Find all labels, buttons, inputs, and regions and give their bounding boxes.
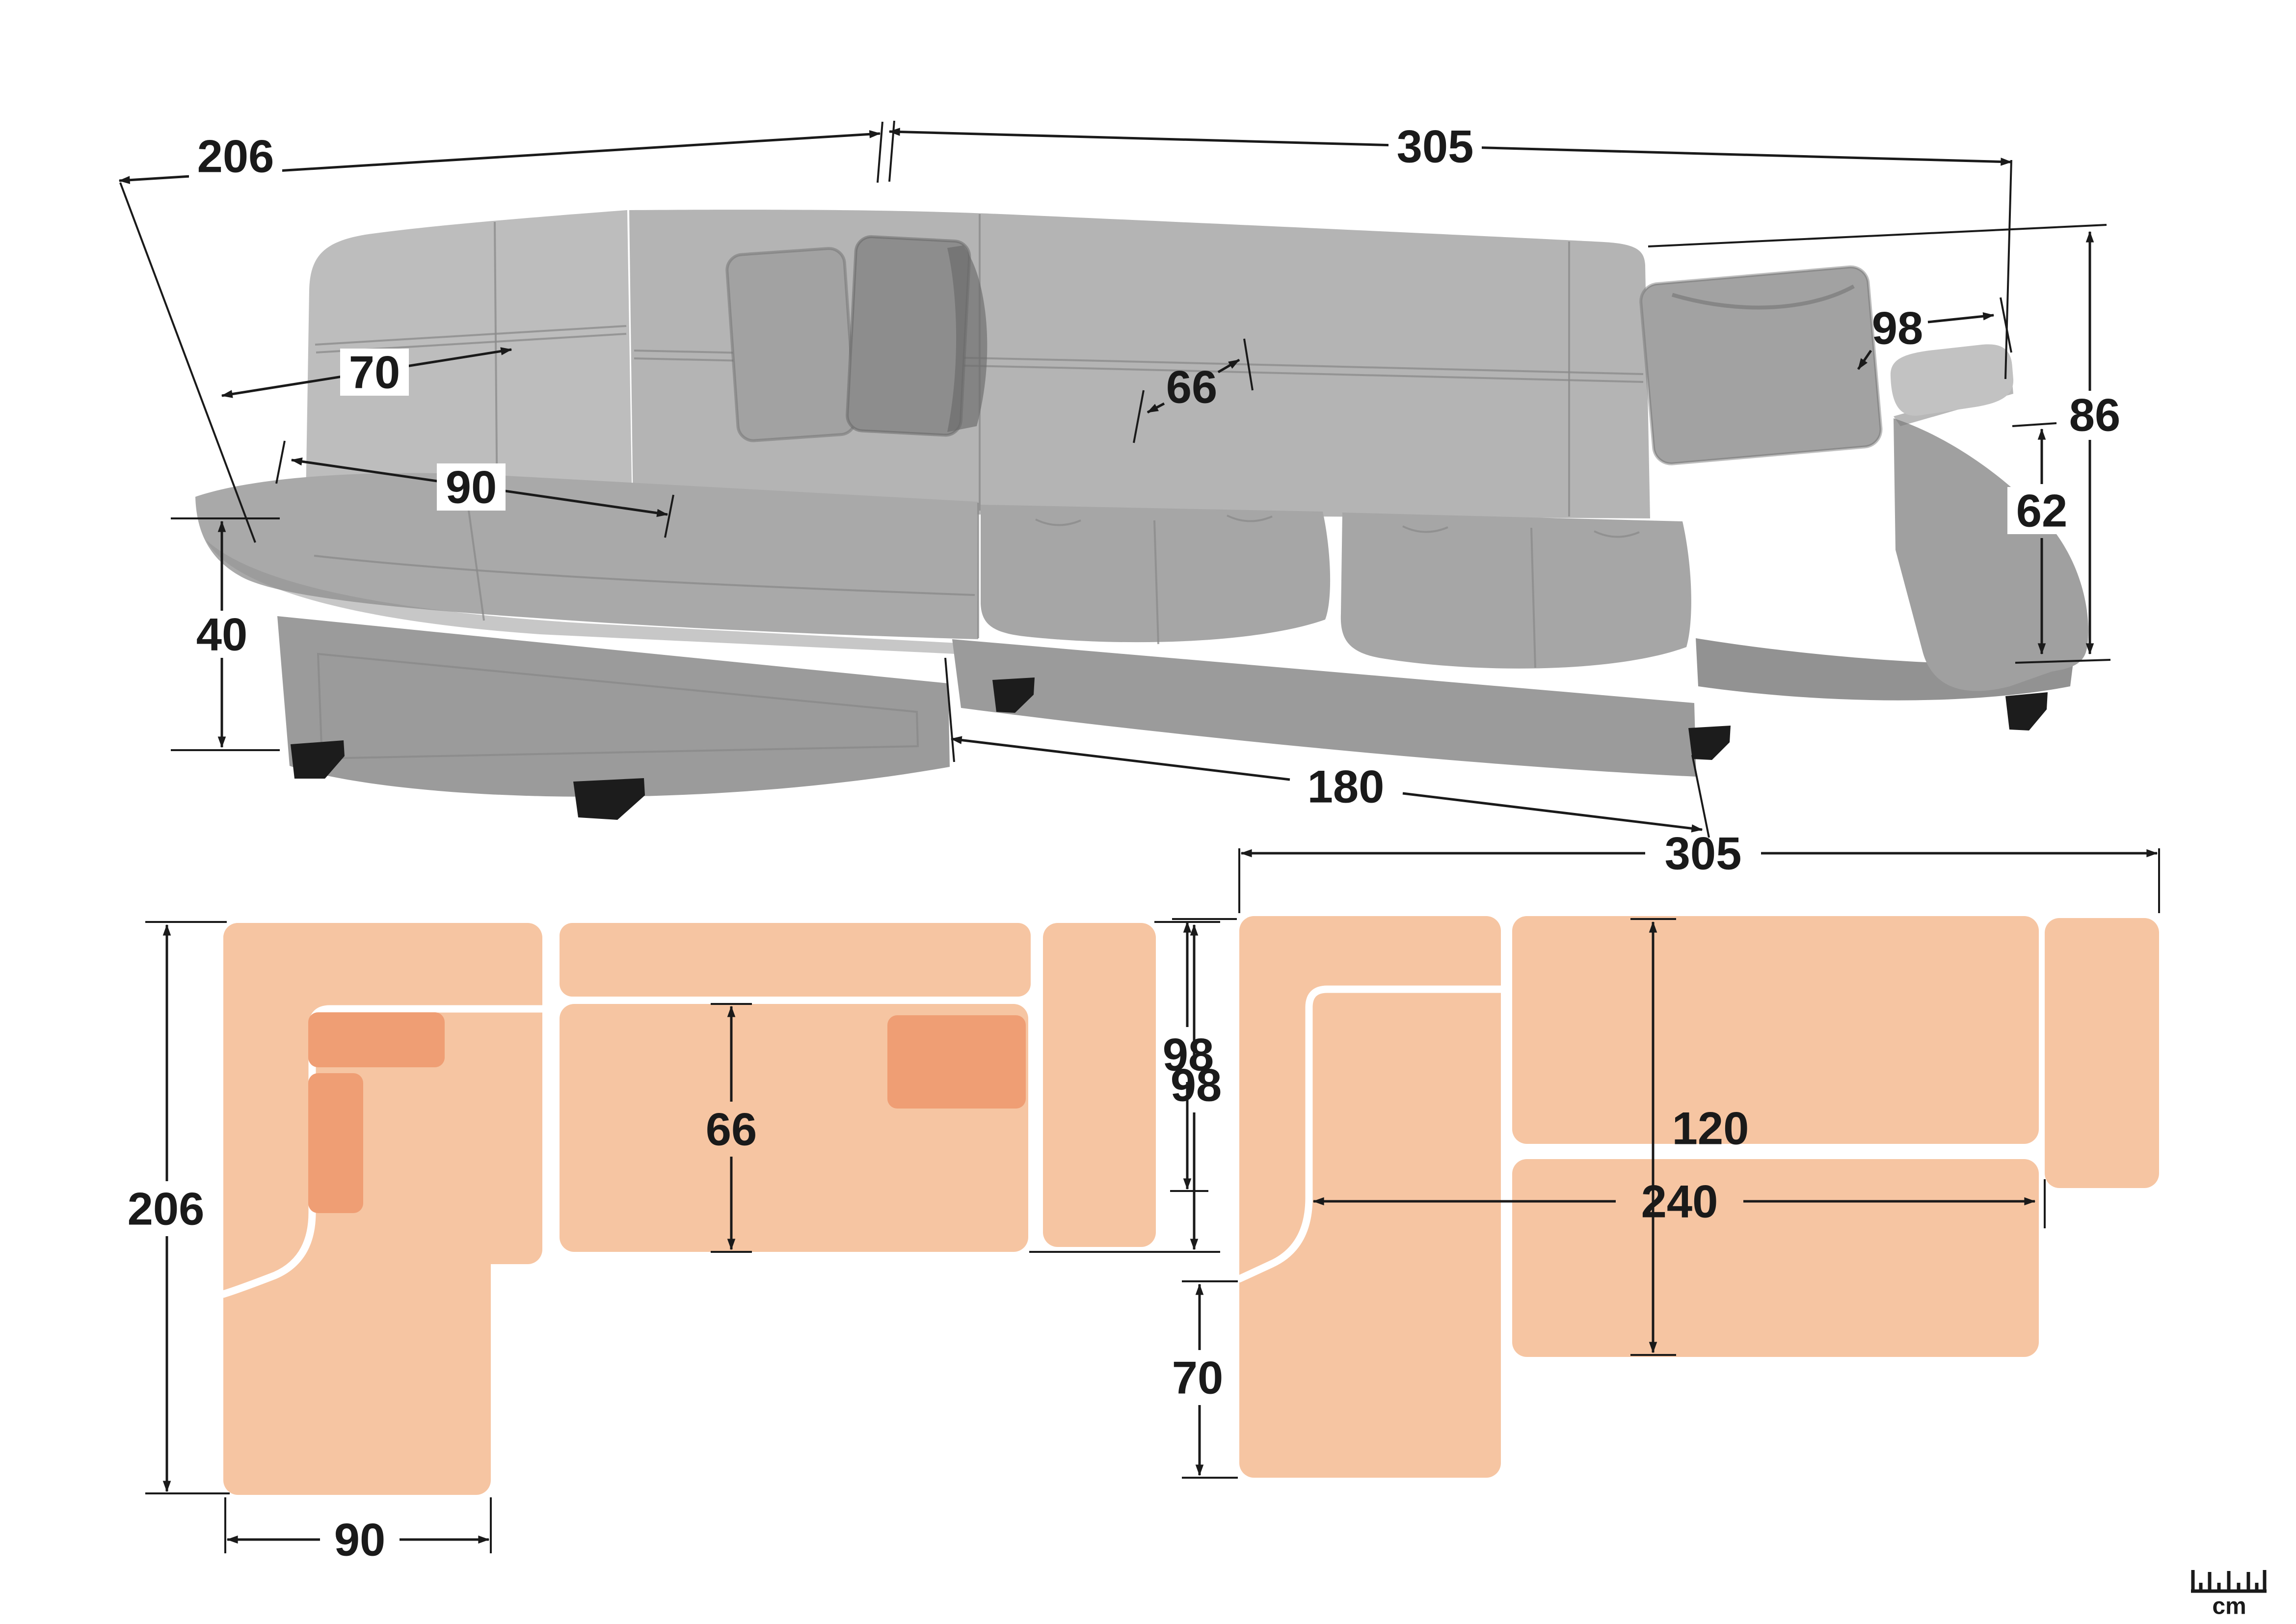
dim-line	[951, 739, 1290, 780]
dim-label-98-photo: 98	[1872, 302, 1923, 354]
plan-cushion-seat	[887, 1015, 1026, 1109]
dim-line	[1928, 315, 1994, 322]
cm-unit-label: cm	[2212, 1594, 2246, 1620]
dim-bed-width: 305	[1239, 828, 2159, 914]
dim-label-305-photo: 305	[1397, 121, 1474, 172]
dim-plan-chaise-width: 90	[225, 1497, 491, 1566]
floorplan-sofa-view: 206 90 66 98	[128, 922, 1222, 1566]
dim-label-66-plan: 66	[706, 1104, 757, 1155]
sofa-dimension-drawing: 206 305 70 90 40	[0, 0, 2296, 1624]
plan-bed-armrest	[2045, 918, 2159, 1188]
seat-cushion	[1341, 513, 1691, 669]
sofa-leg	[2005, 692, 2048, 731]
dim-label-240-bed: 240	[1641, 1176, 1718, 1227]
right-pillow	[1639, 266, 1882, 465]
dim-label-98-bed: 98	[1163, 1029, 1214, 1081]
dimension-sheet: 206 305 70 90 40	[0, 0, 2296, 1624]
dim-label-70-bed: 70	[1172, 1352, 1224, 1404]
plan-cushion-vertical	[308, 1073, 363, 1213]
sofa-photo	[195, 210, 2088, 820]
floorplan-bed-view: 305 98 70 120 240	[1163, 828, 2159, 1478]
ext-line	[1648, 225, 2107, 246]
dim-label-206-plan: 206	[128, 1183, 205, 1235]
dim-label-206-photo: 206	[197, 131, 274, 182]
dim-line	[1403, 793, 1702, 830]
dim-label-120-bed: 120	[1672, 1103, 1749, 1154]
plan-backrest-strip	[560, 923, 1031, 997]
dim-bed-module-depth: 98	[1163, 919, 1237, 1191]
chaise-seat	[195, 473, 978, 639]
sofa-leg	[1688, 726, 1731, 760]
ext-tick	[2012, 423, 2056, 426]
dim-label-86-photo: 86	[2069, 389, 2121, 441]
dim-label-40-photo: 40	[196, 609, 248, 660]
dim-label-90-plan: 90	[334, 1514, 386, 1566]
ext-tick	[276, 441, 285, 484]
plan-bed-seat	[1512, 1159, 2039, 1357]
dim-label-70-photo: 70	[349, 347, 400, 398]
dim-label-62-photo: 62	[2016, 485, 2068, 537]
sofa-leg	[573, 778, 645, 820]
plan-bed-chaise	[1239, 916, 1501, 1478]
ext-line	[1692, 755, 1709, 838]
plan-chaise-corner	[223, 923, 542, 1264]
cm-ruler-icon: cm	[2191, 1570, 2267, 1620]
dim-bed-chaise-extension: 70	[1172, 1281, 1238, 1478]
armrest-side	[1894, 418, 2088, 691]
dim-label-66-photo: 66	[1166, 361, 1218, 413]
plan-bed-backrest	[1512, 916, 2039, 1144]
plan-armrest	[1043, 923, 1156, 1247]
armrest-pad	[1891, 344, 2013, 415]
plan-cushion-horizontal	[308, 1012, 445, 1067]
dim-label-90-photo: 90	[446, 461, 497, 513]
ext-line	[120, 183, 255, 542]
dim-label-180-photo: 180	[1308, 761, 1385, 812]
dim-label-305-plan: 305	[1665, 828, 1742, 879]
break-tick	[878, 122, 882, 183]
dim-plan-length: 206	[128, 922, 230, 1493]
break-tick	[889, 121, 894, 182]
corner-pillow	[726, 247, 856, 442]
